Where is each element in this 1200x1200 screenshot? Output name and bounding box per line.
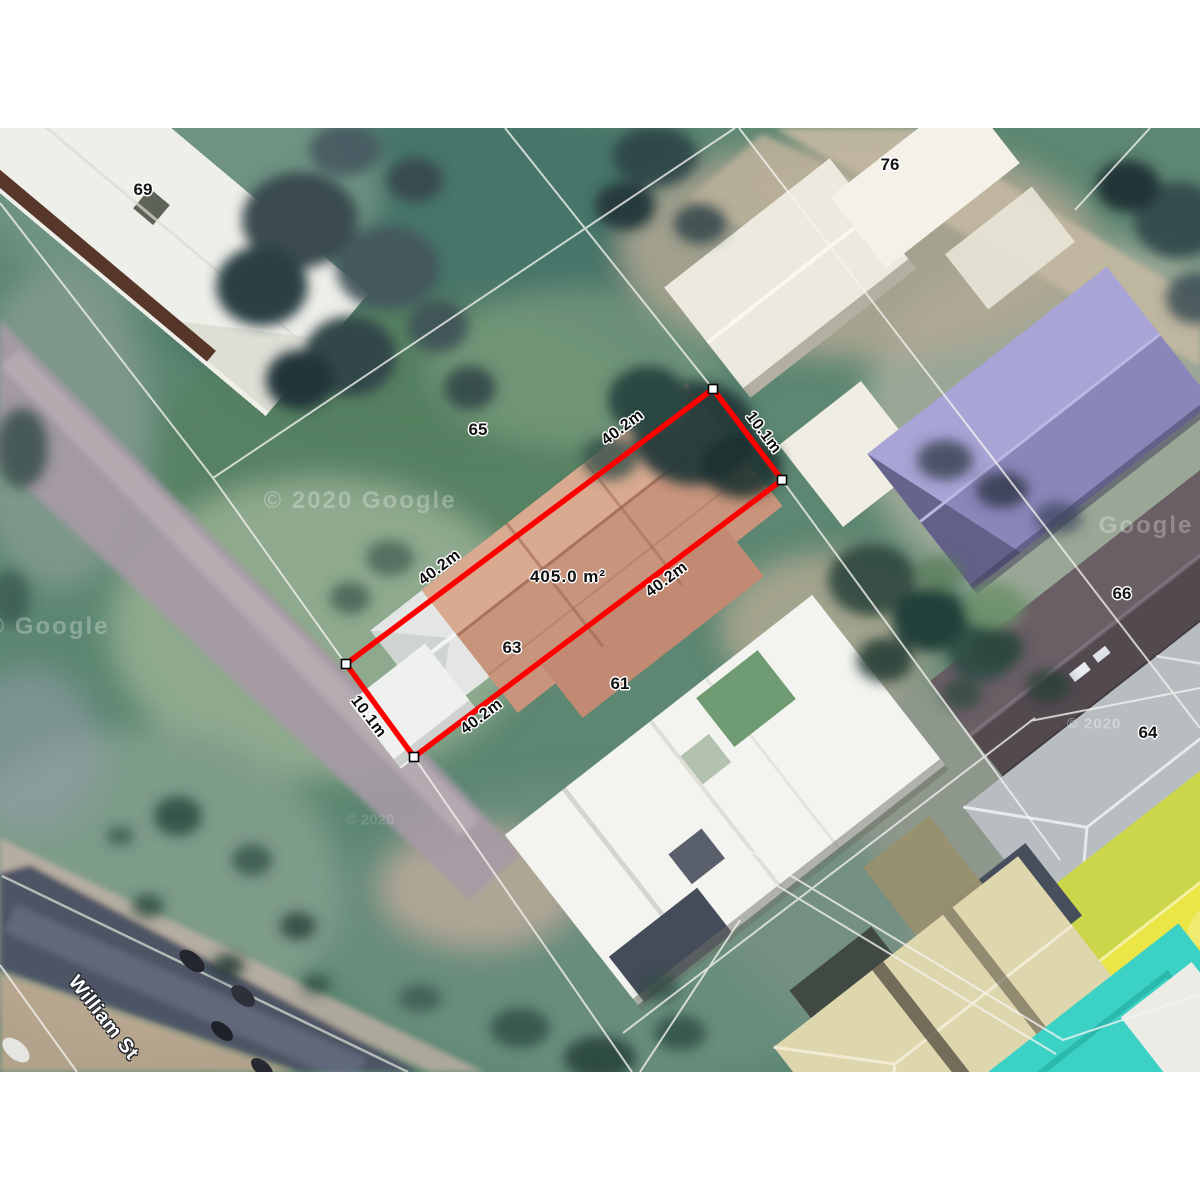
screenshot-page: 69766563616664 40.2m10.1m40.2m40.2m40.2m… (0, 0, 1200, 1200)
parcel-vertex-handle[interactable] (342, 660, 351, 669)
selected-parcel-boundary[interactable] (0, 128, 1200, 1072)
parcel-vertex-handle[interactable] (778, 476, 787, 485)
parcel-vertex-handle[interactable] (709, 385, 718, 394)
satellite-map[interactable] (0, 128, 1200, 1072)
parcel-outline[interactable] (346, 389, 782, 757)
parcel-vertex-handle[interactable] (410, 753, 419, 762)
